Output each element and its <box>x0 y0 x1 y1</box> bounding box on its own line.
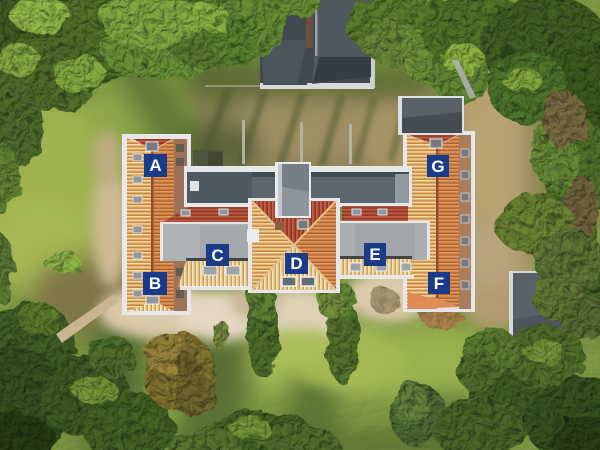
svg-text:C: C <box>211 246 223 265</box>
svg-text:B: B <box>149 274 161 293</box>
svg-text:E: E <box>369 245 380 264</box>
svg-text:G: G <box>431 157 444 176</box>
svg-text:A: A <box>149 156 161 175</box>
svg-text:D: D <box>290 254 302 273</box>
svg-text:F: F <box>434 274 444 293</box>
